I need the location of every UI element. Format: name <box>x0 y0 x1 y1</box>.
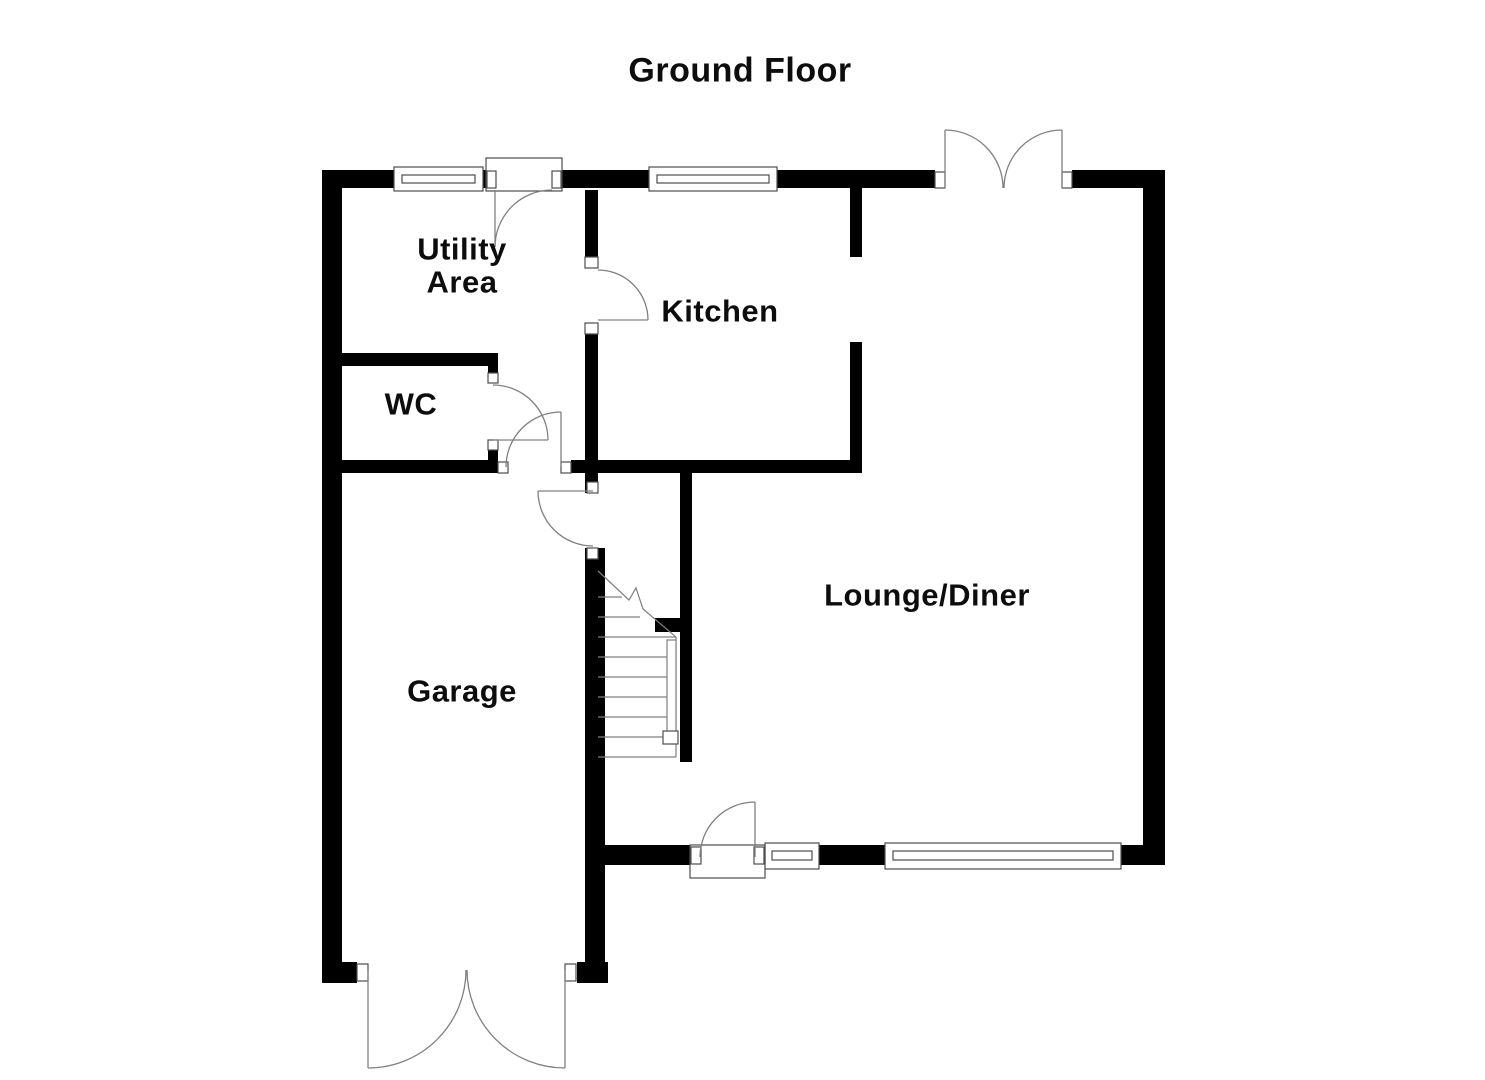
wall-lounge-left <box>680 460 692 762</box>
wall-wc-top <box>342 353 498 366</box>
window-lounge-large <box>885 843 1121 869</box>
stair-handrail <box>667 640 676 732</box>
staircase <box>598 571 678 757</box>
wall-kitchen-left-upper <box>585 190 598 268</box>
wall-kitchen-right-lower <box>850 342 862 473</box>
stair-break-line <box>598 571 676 637</box>
wall-garage-east <box>585 548 605 962</box>
floor-title: Ground Floor <box>628 52 851 91</box>
floorplan-drawing <box>0 0 1485 1080</box>
window-kitchen <box>649 167 777 191</box>
stair-newel-post <box>663 731 678 744</box>
front-door-frame <box>690 845 765 878</box>
garage-double-door-swing-icon <box>368 970 565 1068</box>
wall-kitchen-left-lower <box>585 323 598 460</box>
wall-left <box>322 170 342 983</box>
wall-hall-south-b <box>571 460 585 473</box>
room-label-kitchen: Kitchen <box>661 296 778 329</box>
window-lounge-small <box>765 843 819 869</box>
room-label-garage: Garage <box>407 676 517 709</box>
utility-door-frame <box>486 158 562 191</box>
floorplan-canvas: Ground Floor Utility Area Kitchen WC Gar… <box>0 0 1485 1080</box>
window-utility <box>394 167 483 191</box>
wc-door-swing-icon <box>493 385 548 440</box>
wall-kitchen-right-upper <box>850 188 862 257</box>
opening-hall-door <box>498 459 571 474</box>
wall-kitchen-bottom <box>598 460 862 473</box>
room-label-lounge-diner: Lounge/Diner <box>824 580 1030 613</box>
kitchen-door-swing-icon <box>598 270 648 320</box>
room-label-wc: WC <box>385 389 438 422</box>
hall-garage-door-swing-icon <box>538 491 593 546</box>
wall-right <box>1143 170 1165 865</box>
wall-stair-stub <box>655 618 692 632</box>
room-label-utility-area: Utility Area <box>417 233 507 298</box>
wall-hall-south-a <box>342 460 498 473</box>
